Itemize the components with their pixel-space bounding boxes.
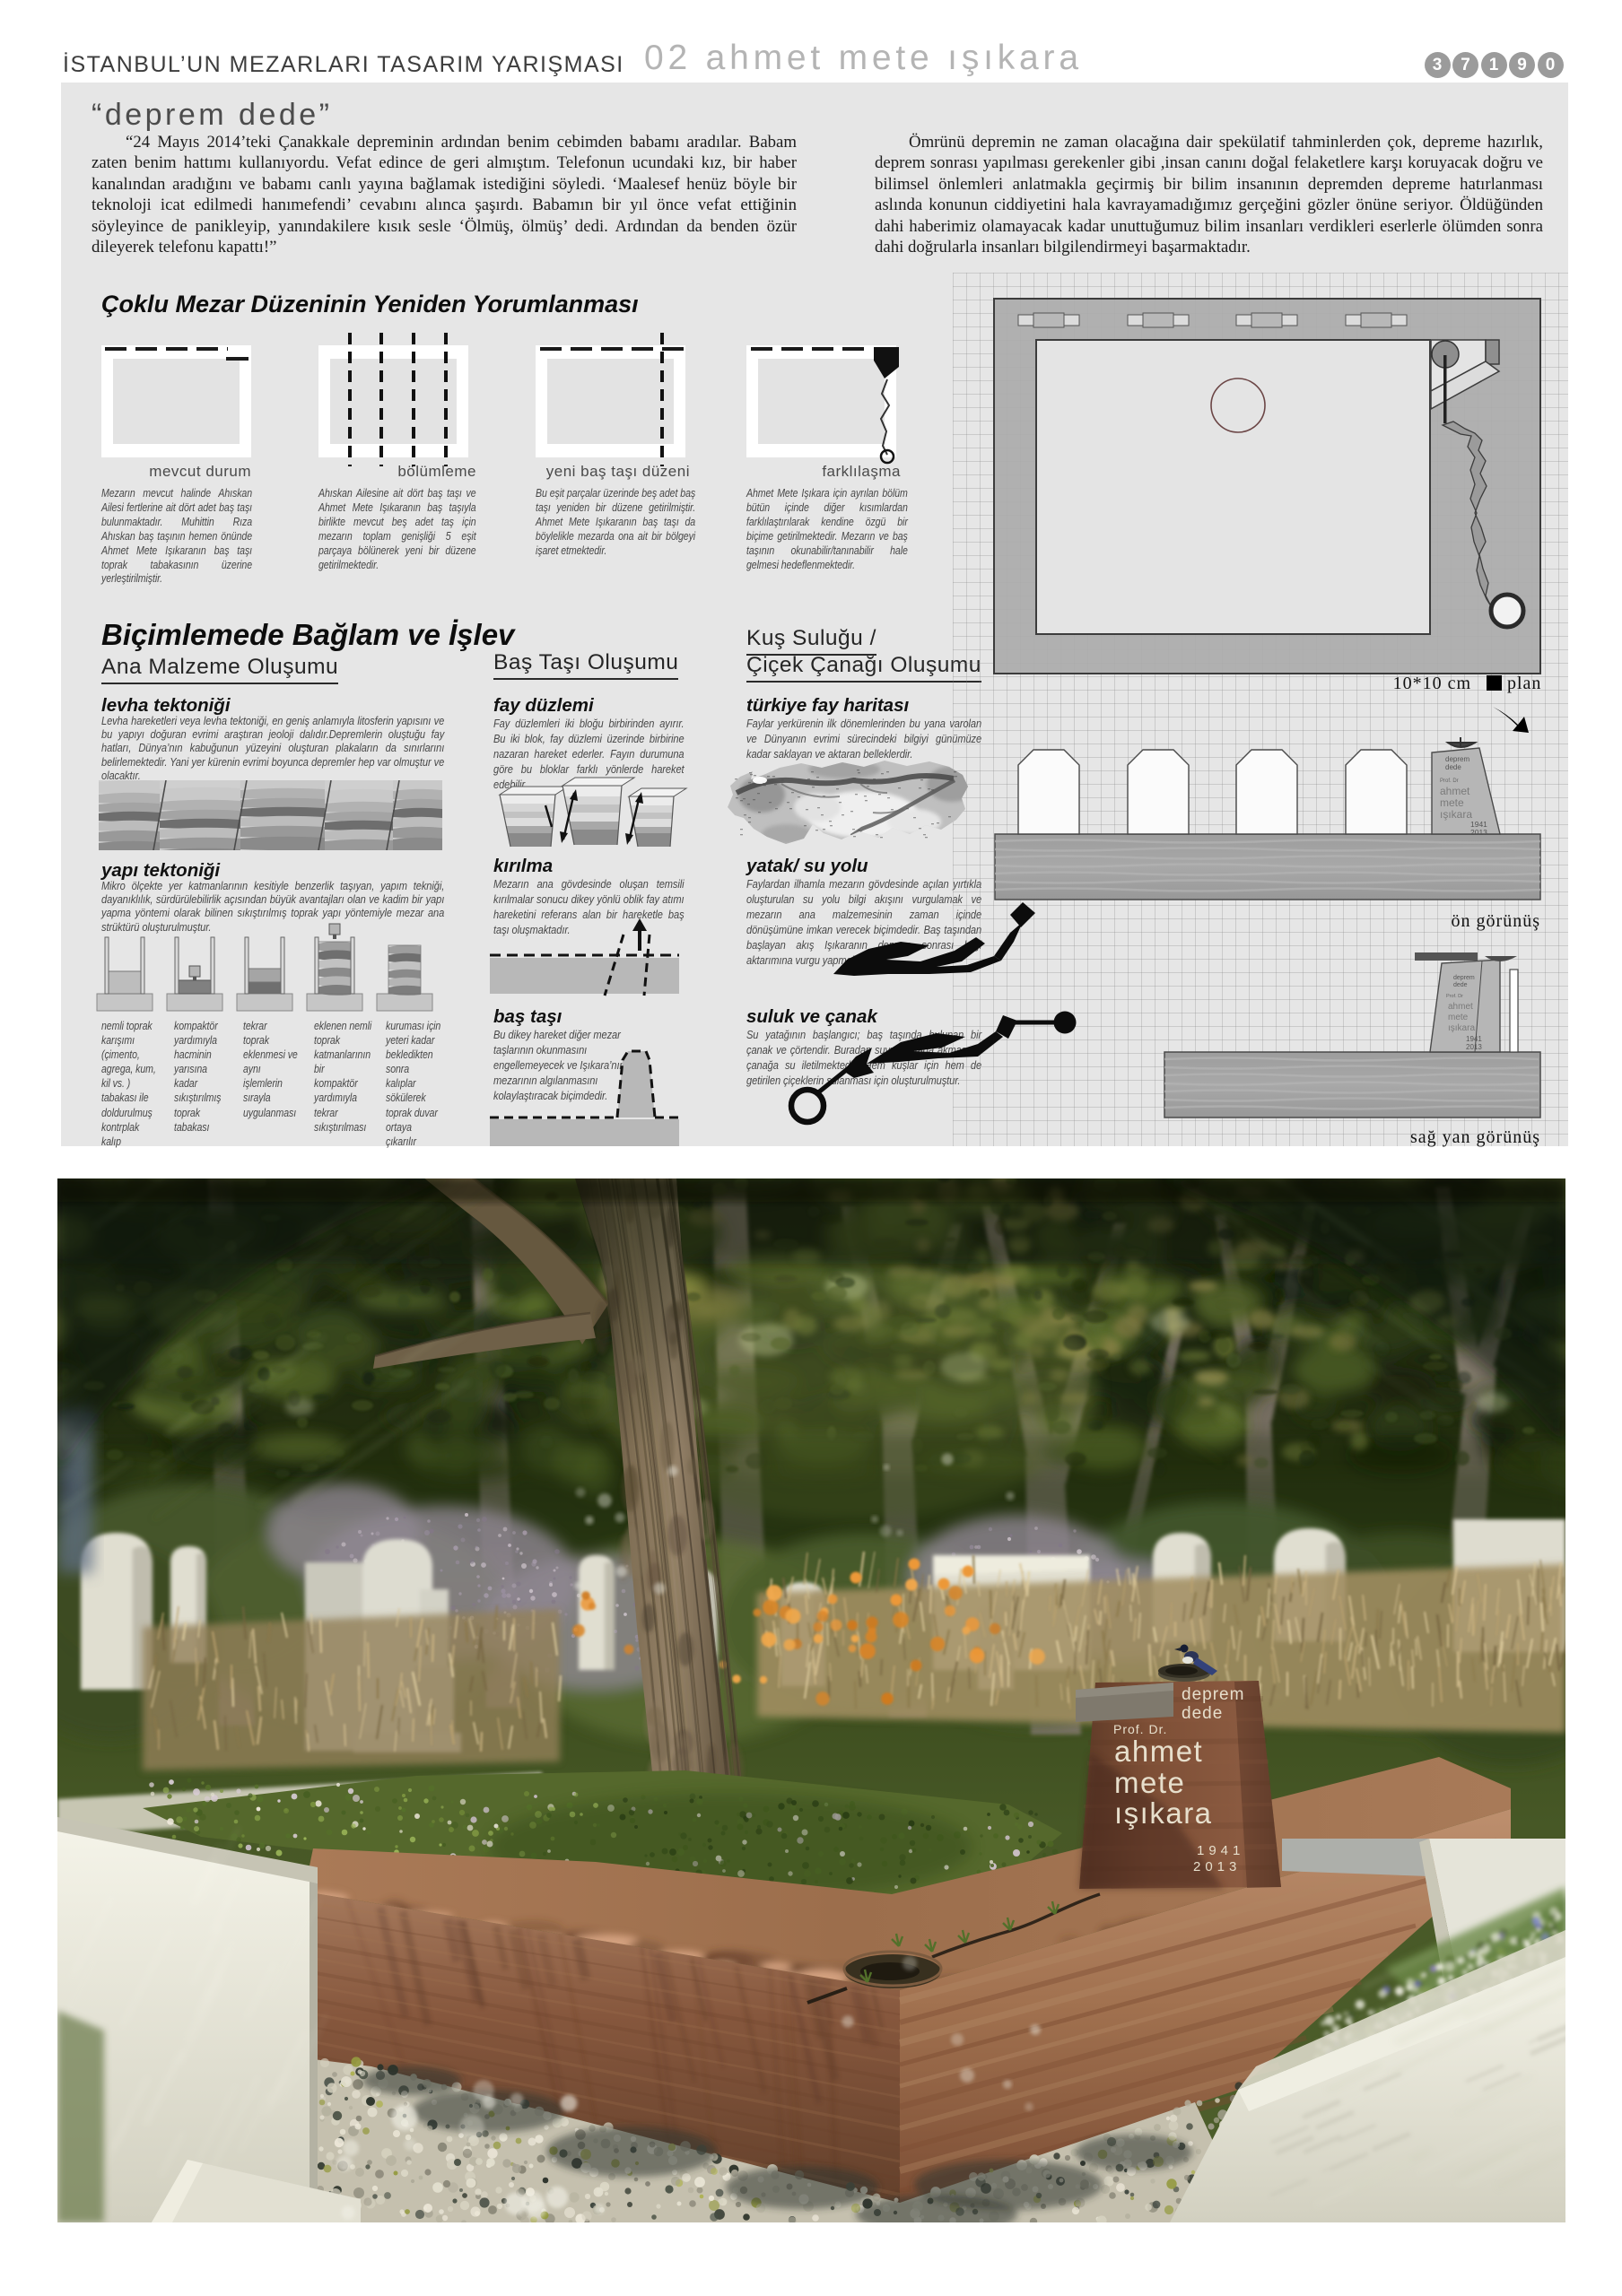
svg-text:mete: mete xyxy=(1114,1766,1185,1799)
svg-text:Prof. Dr: Prof. Dr xyxy=(1440,778,1459,784)
svg-text:2013: 2013 xyxy=(1466,1043,1482,1051)
svg-text:2013: 2013 xyxy=(1470,828,1487,837)
svg-text:ahmet: ahmet xyxy=(1440,785,1470,797)
svg-text:deprem: deprem xyxy=(1182,1685,1244,1704)
svg-text:dede: dede xyxy=(1182,1704,1223,1723)
svg-text:1941: 1941 xyxy=(1466,1035,1482,1043)
svg-text:dede: dede xyxy=(1453,982,1468,988)
svg-text:deprem: deprem xyxy=(1445,755,1469,763)
svg-text:ahmet: ahmet xyxy=(1114,1735,1203,1768)
svg-text:dede: dede xyxy=(1445,763,1461,771)
svg-text:ışıkara: ışıkara xyxy=(1114,1796,1213,1830)
svg-text:Prof. Dr: Prof. Dr xyxy=(1446,994,1463,999)
svg-text:ışıkara: ışıkara xyxy=(1448,1023,1475,1033)
svg-text:deprem: deprem xyxy=(1453,975,1475,981)
svg-text:1941: 1941 xyxy=(1197,1843,1244,1858)
svg-text:ahmet: ahmet xyxy=(1448,1002,1473,1012)
svg-text:2013: 2013 xyxy=(1193,1859,1241,1874)
svg-text:mete: mete xyxy=(1440,796,1464,809)
svg-text:mete: mete xyxy=(1448,1013,1469,1022)
svg-text:ışıkara: ışıkara xyxy=(1440,808,1472,821)
